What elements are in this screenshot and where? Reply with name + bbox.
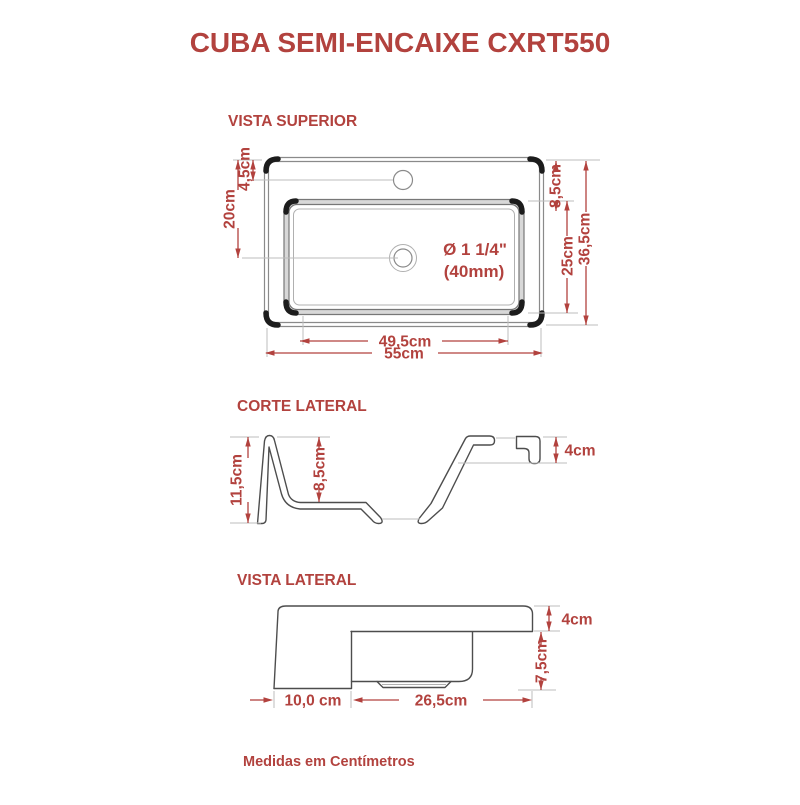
technical-drawing-page: CUBA SEMI-ENCAIXE CXRT550 VISTA SUPERIOR (0, 0, 800, 800)
dim-total-width-label: 55cm (384, 345, 424, 362)
section-cut-profile (258, 436, 541, 524)
drain-diameter-line1: Ø 1 1/4" (443, 240, 507, 259)
dim-basin-inner-depth-label: 8,5cm (311, 447, 328, 491)
dim-total-depth-label: 36,5cm (576, 213, 593, 266)
dim-bowl-height-label: 7,5cm (533, 639, 550, 683)
footer-note: Medidas em Centímetros (243, 754, 415, 770)
dim-drain-offset-label: 20cm (221, 189, 238, 229)
dim-basin-depth-label: 25cm (559, 236, 576, 276)
drain-diameter-line2: (40mm) (444, 262, 504, 281)
dim-basin-top-offset-label: 8,5cm (547, 164, 564, 208)
dim-total-height-label: 11,5cm (228, 454, 245, 506)
faucet-hole (394, 171, 413, 190)
dim-bowl-depth-label: 26,5cm (415, 692, 468, 709)
section-cut-heading: CORTE LATERAL (237, 398, 367, 415)
dim-side-rim-height-label: 4cm (561, 611, 592, 628)
dim-front-depth-label: 10,0 cm (285, 692, 342, 709)
side-view: VISTA LATERAL 4cm (237, 572, 593, 709)
drain-diameter-label: Ø 1 1/4" (40mm) (443, 240, 507, 281)
page-title: CUBA SEMI-ENCAIXE CXRT550 (190, 27, 611, 58)
top-view-dimensions: 4,5cm 20cm 8,5cm 25cm 36,5cm (221, 147, 593, 362)
side-view-dimensions: 4cm 7,5cm 10,0 cm 26,5cm (250, 606, 593, 709)
drawing-canvas: CUBA SEMI-ENCAIXE CXRT550 VISTA SUPERIOR (0, 0, 800, 800)
side-view-heading: VISTA LATERAL (237, 572, 356, 589)
top-view: VISTA SUPERIOR (221, 113, 600, 362)
section-cut-view: CORTE LATERAL 11,5cm (228, 398, 595, 524)
side-view-outline (274, 606, 533, 689)
top-view-heading: VISTA SUPERIOR (228, 113, 357, 130)
dim-rim-height-label: 4cm (564, 442, 595, 459)
